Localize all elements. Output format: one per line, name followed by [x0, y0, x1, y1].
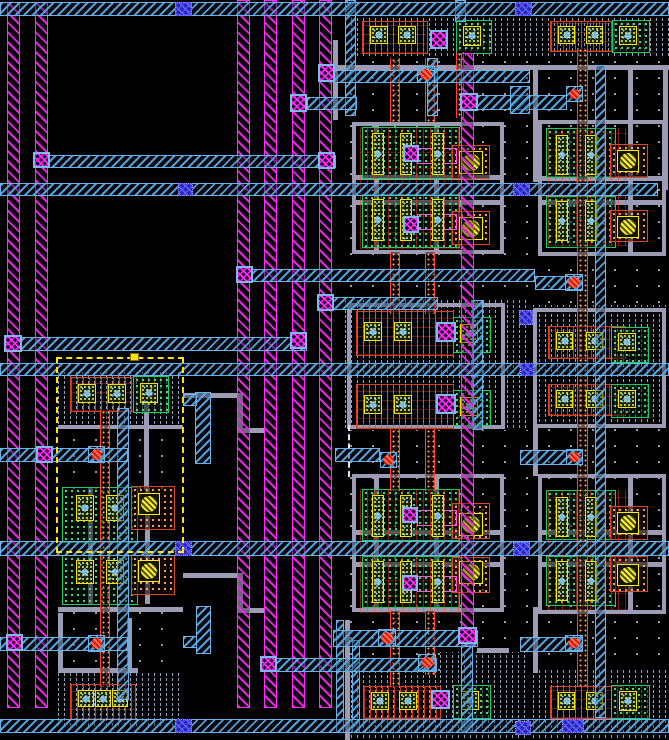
contact-cut: [618, 390, 636, 408]
metal-route-gray: [477, 648, 509, 653]
via-m1-m2: [317, 294, 334, 311]
contact-cut: [364, 395, 382, 414]
contact-cut: [95, 690, 111, 707]
via-m1-m2: [403, 145, 419, 162]
contact-cut: [556, 332, 573, 350]
via-m1-m2: [4, 335, 22, 352]
contact-cut: [394, 322, 412, 341]
contact-bar: [76, 560, 94, 584]
via-m1-m2: [403, 216, 419, 233]
via-stack-blue: [175, 719, 192, 733]
via-m1-m2: [290, 332, 307, 349]
via-contact-red: [566, 86, 583, 102]
poly-track: [390, 611, 400, 687]
via-m1-m2: [431, 690, 450, 709]
poly-track: [425, 429, 435, 491]
contact-bar: [432, 495, 444, 537]
contact-cut: [618, 333, 636, 351]
metal2-power-stripe: [237, 0, 250, 708]
contact-bar: [372, 561, 384, 603]
via-m1-m2: [318, 64, 335, 82]
contact-bar: [556, 497, 568, 537]
via-contact-red: [378, 629, 396, 647]
metal1-wire: [307, 97, 357, 110]
contact-cut: [619, 26, 637, 45]
contact-bar: [372, 495, 384, 537]
contact-bar: [432, 561, 444, 603]
contact-bar: [556, 135, 568, 175]
contact-bar: [556, 201, 568, 241]
selection-box[interactable]: [56, 357, 184, 553]
contact-cut: [398, 26, 416, 44]
metal-route-gray: [628, 65, 633, 128]
metal1-wire: [595, 65, 606, 718]
selection-origin-handle[interactable]: [130, 353, 139, 361]
contact-bar: [432, 133, 444, 175]
contact-large-circle: [617, 150, 639, 172]
via-stack-blue: [562, 719, 584, 733]
metal1-wire: [0, 183, 658, 196]
metal1-wire: [318, 297, 438, 310]
via-stack-blue: [515, 2, 532, 16]
via-contact-red: [88, 635, 105, 652]
metal1-wire: [333, 630, 478, 647]
metal1-wire: [196, 606, 211, 654]
via-stack-blue: [515, 721, 531, 735]
metal1-wire: [195, 392, 211, 464]
metal1-wire: [237, 269, 535, 282]
contact-cut: [78, 690, 94, 707]
via-m1-m2: [458, 627, 477, 644]
contact-cut: [364, 322, 382, 341]
contact-cut: [558, 26, 575, 44]
contact-large-circle: [138, 560, 160, 582]
via-m1-m2: [260, 656, 277, 672]
via-contact-red: [566, 449, 583, 465]
via-contact-red: [380, 452, 397, 468]
via-m1-m2: [290, 94, 307, 112]
via-stack-blue: [513, 542, 530, 556]
metal1-wire: [510, 86, 530, 114]
contact-cut: [394, 395, 412, 414]
metal1-wire: [183, 394, 197, 406]
contact-cut: [586, 26, 603, 44]
via-m1-m2: [436, 322, 456, 342]
metal1-wire: [0, 2, 669, 16]
metal1-wire: [183, 636, 197, 648]
contact-bar: [432, 199, 444, 241]
contact-large-circle: [617, 512, 639, 534]
contact-cut: [370, 26, 388, 44]
metal2-power-stripe: [264, 0, 277, 708]
layout-canvas[interactable]: [0, 0, 669, 740]
metal1-wire: [262, 658, 437, 672]
contact-cut: [399, 692, 417, 710]
via-contact-red: [418, 654, 436, 671]
via-m1-m2: [460, 93, 478, 111]
metal2-power-stripe: [7, 2, 20, 708]
contact-cut: [619, 691, 637, 711]
contact-large-circle: [617, 564, 639, 586]
metal2-power-stripe: [461, 53, 474, 645]
via-m1-m2: [402, 507, 418, 523]
via-contact-red: [565, 274, 583, 291]
via-m1-m2: [430, 30, 448, 49]
metal1-wire: [36, 155, 336, 168]
contact-large-circle: [617, 216, 639, 238]
via-contact-red: [417, 66, 435, 83]
via-stack-blue: [520, 363, 534, 376]
contact-cut: [371, 692, 389, 710]
via-stack-blue: [513, 183, 530, 196]
contact-cut: [558, 692, 575, 710]
contact-bar: [372, 133, 384, 175]
via-m1-m2: [402, 575, 418, 591]
contact-cut: [556, 390, 573, 408]
metal1-wire: [5, 337, 307, 351]
metal1-wire: [335, 448, 380, 462]
via-m1-m2: [318, 152, 335, 169]
via-m1-m2: [436, 394, 456, 414]
contact-cut: [463, 26, 481, 46]
metal2-power-stripe: [35, 2, 48, 708]
contact-bar: [556, 561, 568, 601]
via-m1-m2: [33, 152, 50, 168]
via-m1-m2: [6, 634, 23, 651]
via-stack-blue: [175, 2, 192, 16]
contact-bar: [372, 199, 384, 241]
metal-route-gray: [183, 573, 243, 578]
via-contact-red: [565, 635, 583, 651]
via-stack-blue: [178, 183, 193, 196]
via-stack-blue: [519, 310, 533, 325]
poly-track: [390, 58, 400, 122]
via-m1-m2: [236, 266, 253, 283]
via-m1-m2: [36, 446, 53, 463]
